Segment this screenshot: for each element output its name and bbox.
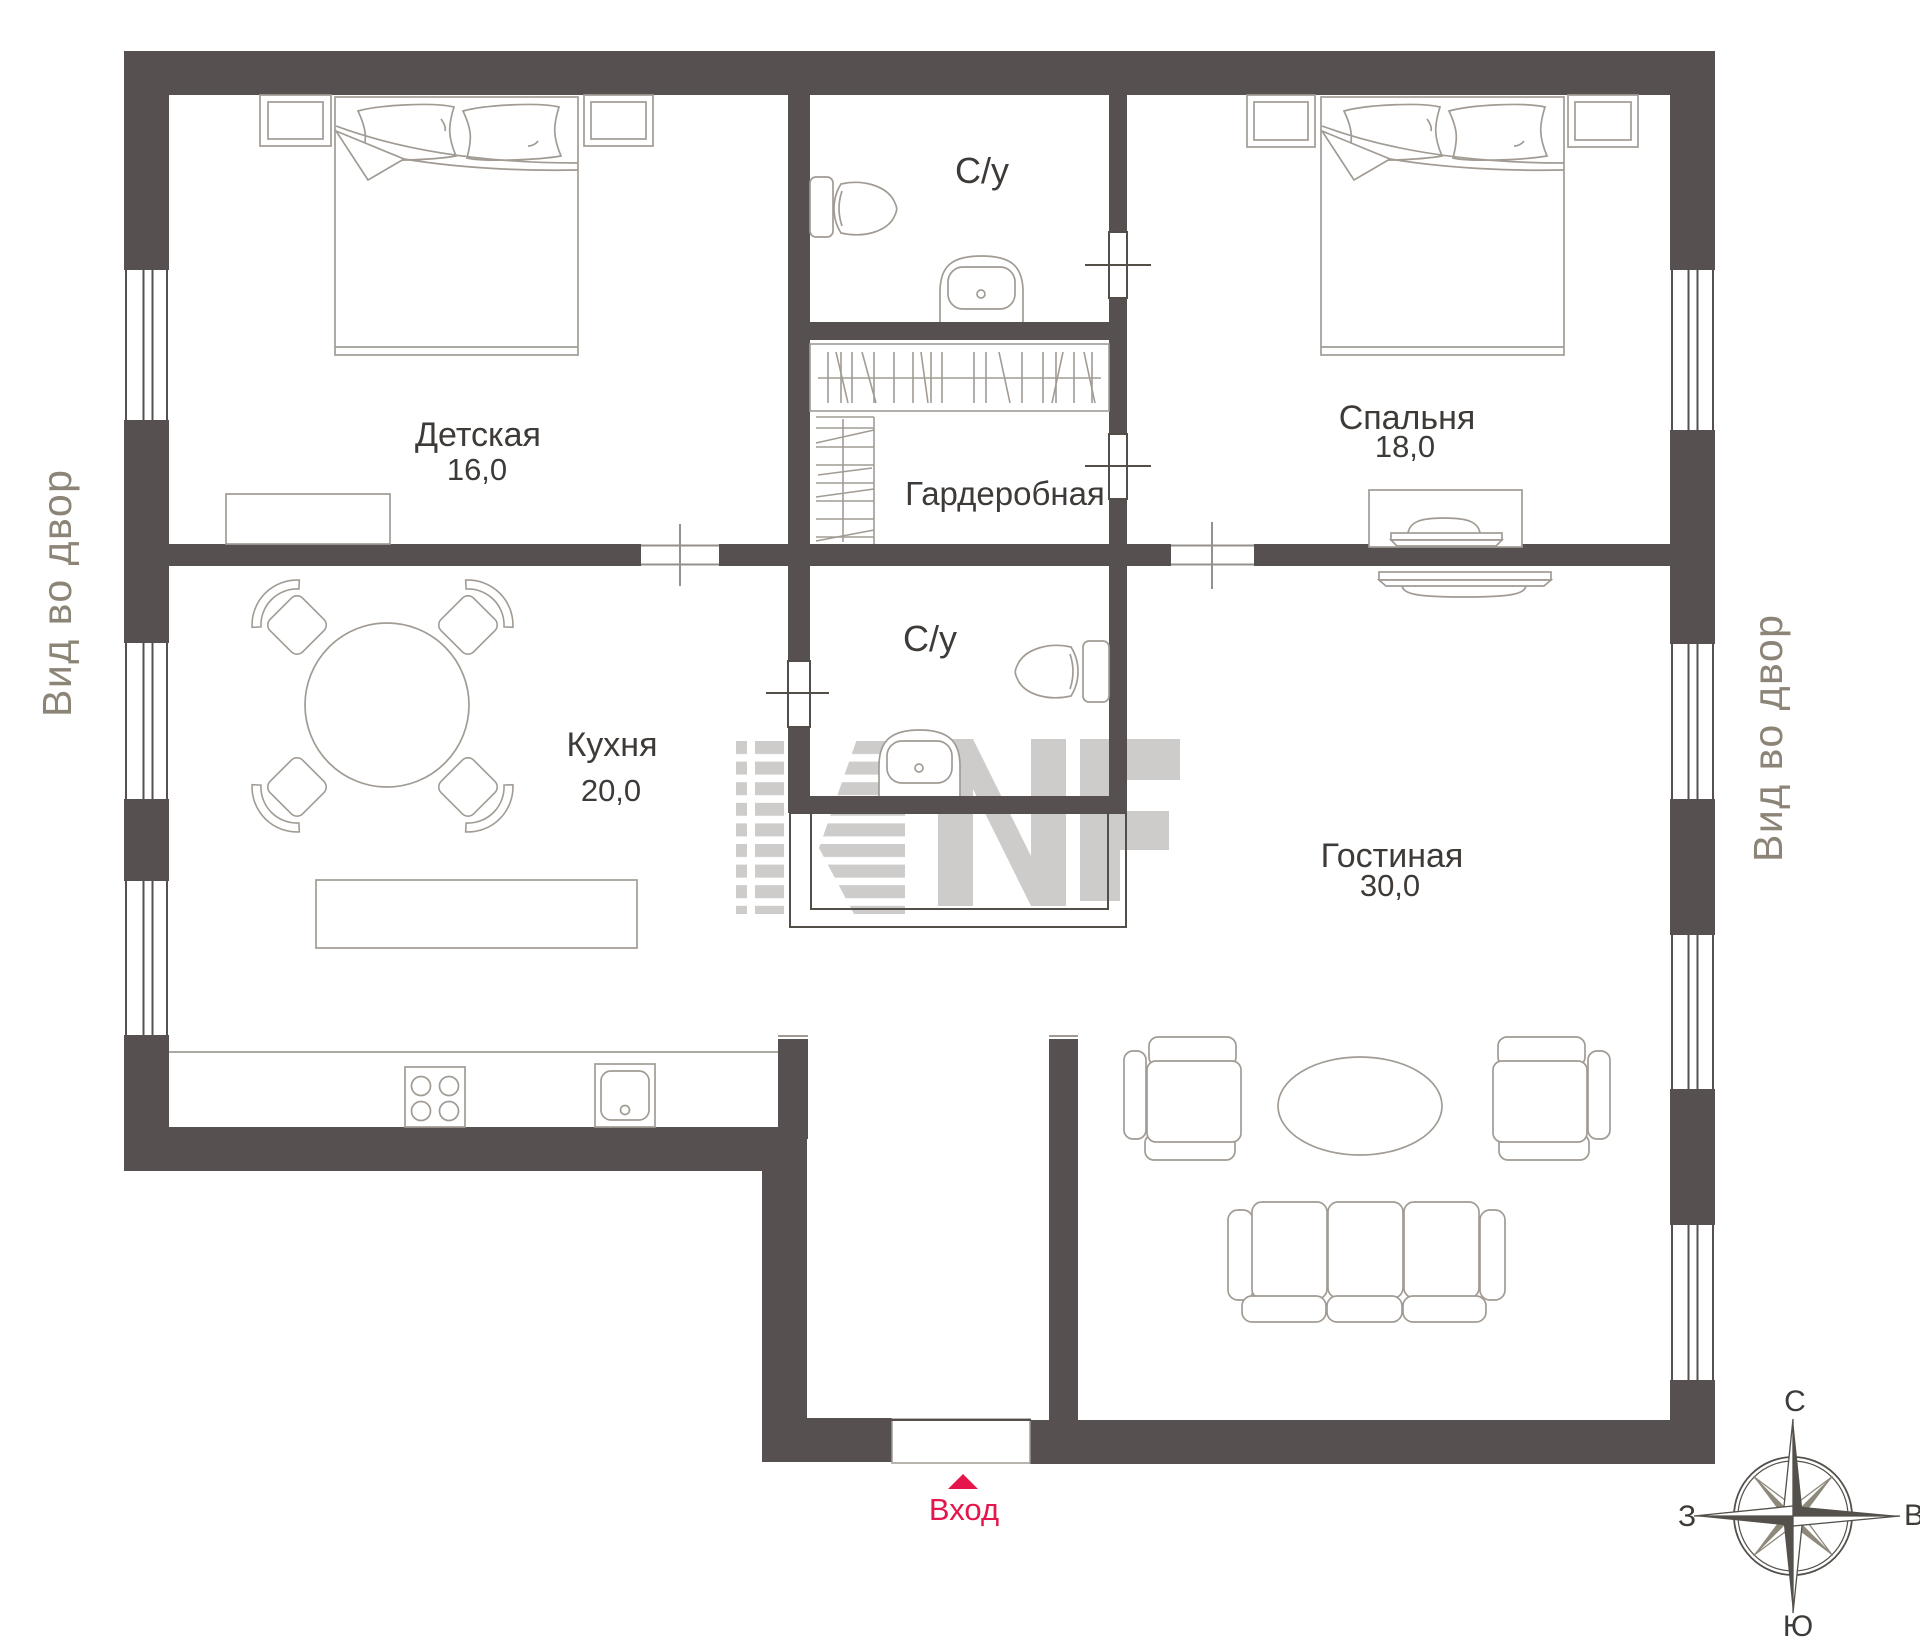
svg-text:Вид во двор: Вид во двор	[34, 469, 80, 717]
svg-text:Вид во двор: Вид во двор	[1745, 614, 1791, 862]
svg-text:18,0: 18,0	[1375, 429, 1435, 464]
svg-text:С: С	[1784, 1385, 1806, 1418]
svg-text:С/у: С/у	[903, 618, 957, 659]
svg-text:16,0: 16,0	[447, 452, 507, 487]
svg-text:Ю: Ю	[1783, 1610, 1813, 1643]
svg-text:З: З	[1678, 1500, 1696, 1533]
svg-text:30,0: 30,0	[1360, 868, 1420, 903]
svg-text:20,0: 20,0	[581, 773, 641, 808]
svg-text:Гардеробная: Гардеробная	[905, 475, 1105, 512]
svg-text:Детская: Детская	[415, 416, 541, 454]
svg-text:В: В	[1904, 1499, 1920, 1532]
svg-text:Вход: Вход	[929, 1492, 999, 1527]
svg-text:С/у: С/у	[955, 150, 1009, 191]
svg-text:Кухня: Кухня	[567, 726, 658, 764]
